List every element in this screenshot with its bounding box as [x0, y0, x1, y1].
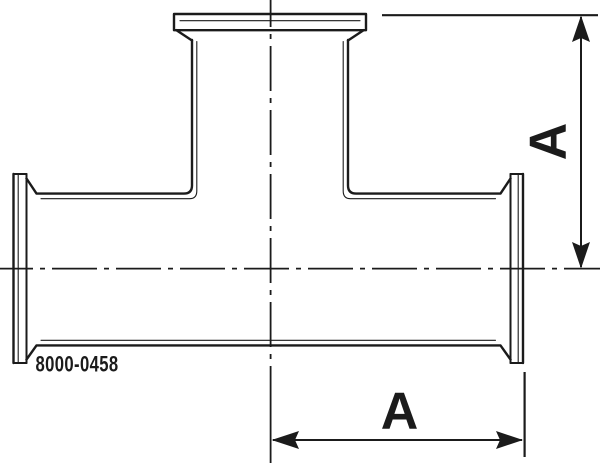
top-ferrule-cone-right — [348, 30, 364, 40]
inner-line-left — [41, 42, 197, 199]
left-arrowhead — [272, 431, 299, 449]
horizontal-dimension-label: A — [381, 383, 419, 441]
branch-right-wall — [348, 40, 511, 194]
technical-drawing-canvas: A A 8000-0458 — [0, 0, 600, 463]
top-ferrule-cone-left — [177, 30, 193, 40]
tee-fitting-drawing: A A 8000-0458 — [0, 0, 600, 463]
inner-line-right — [343, 42, 495, 199]
fitting-outline — [14, 14, 524, 363]
part-number: 8000-0458 — [36, 352, 119, 377]
right-arrowhead — [496, 431, 523, 449]
branch-left-wall — [27, 40, 193, 194]
vertical-dimension-label: A — [520, 123, 578, 161]
